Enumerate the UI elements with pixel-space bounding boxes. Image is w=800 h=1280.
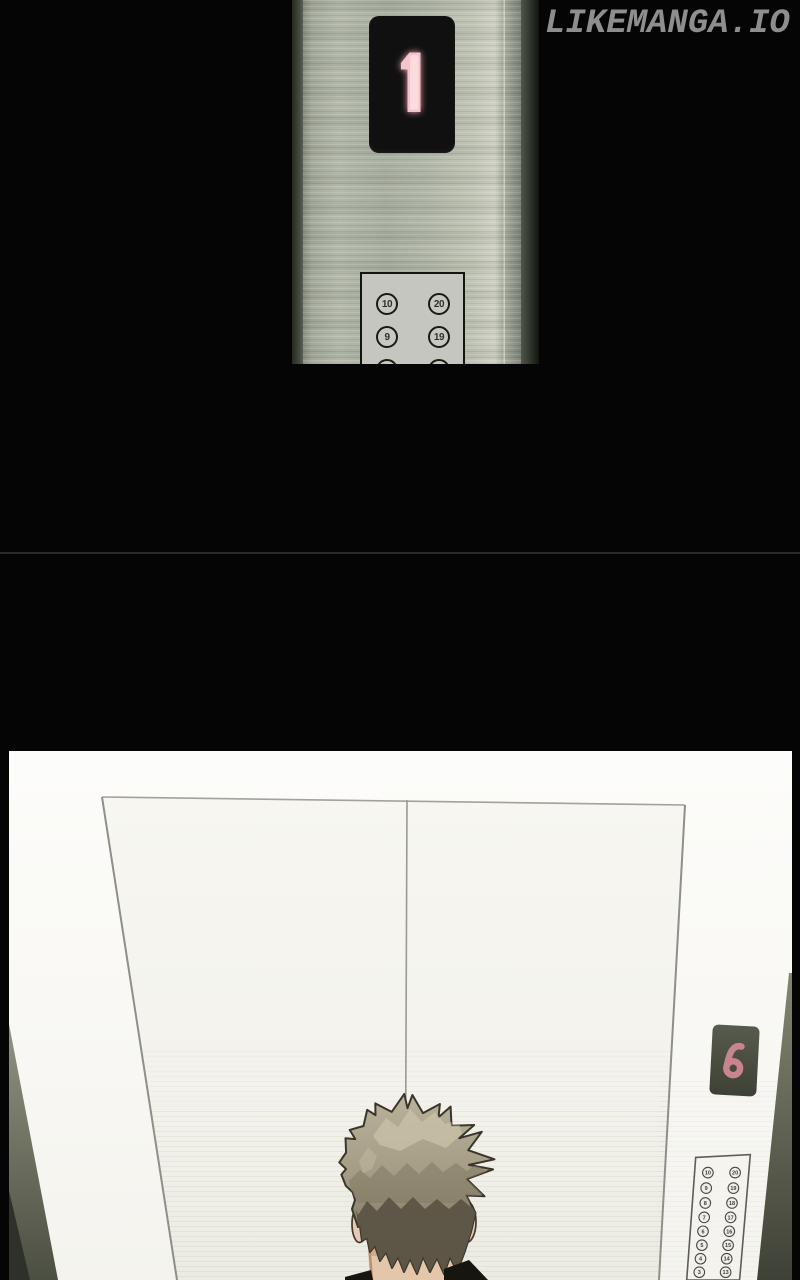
svg-text:17: 17 — [728, 1215, 734, 1221]
svg-text:5: 5 — [700, 1243, 703, 1249]
svg-text:10: 10 — [705, 1171, 711, 1177]
svg-text:14: 14 — [724, 1257, 731, 1263]
svg-text:9: 9 — [705, 1186, 708, 1192]
svg-text:6: 6 — [701, 1229, 704, 1235]
svg-text:15: 15 — [725, 1243, 731, 1249]
svg-text:7: 7 — [703, 1215, 706, 1221]
svg-text:19: 19 — [730, 1186, 736, 1192]
svg-text:3: 3 — [698, 1270, 701, 1276]
svg-text:16: 16 — [726, 1229, 732, 1235]
svg-text:8: 8 — [704, 1201, 707, 1207]
svg-text:18: 18 — [729, 1201, 735, 1207]
svg-text:20: 20 — [732, 1171, 738, 1177]
svg-text:13: 13 — [723, 1270, 729, 1276]
